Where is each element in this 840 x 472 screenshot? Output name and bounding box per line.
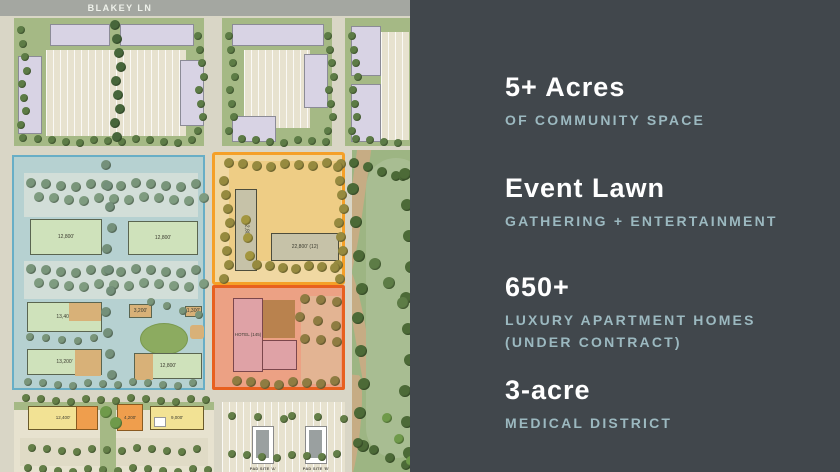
tree (159, 381, 167, 389)
tree (69, 382, 77, 390)
tree (194, 127, 202, 135)
tree (73, 448, 81, 456)
tree (18, 80, 26, 88)
tree (99, 380, 107, 388)
tree (294, 136, 302, 144)
tree (56, 267, 66, 277)
tree (195, 86, 203, 94)
tree (191, 179, 201, 189)
tree (326, 46, 334, 54)
tree (338, 246, 348, 256)
tree (327, 100, 335, 108)
tree (84, 379, 92, 387)
tree (58, 447, 66, 455)
block-northwest (14, 18, 204, 146)
tree (161, 267, 171, 277)
building: 3,200' (129, 304, 152, 318)
tree (79, 196, 89, 206)
tree (331, 321, 341, 331)
tree (337, 190, 347, 200)
tree (101, 307, 111, 317)
tree (339, 204, 349, 214)
tree (324, 127, 332, 135)
tree (24, 464, 32, 472)
tree (303, 452, 311, 460)
stat-value: 650+ (505, 274, 805, 301)
tree (353, 250, 365, 262)
building-label: 4,200' (118, 405, 142, 430)
tree (356, 283, 368, 295)
stat-label: OF COMMUNITY SPACE (505, 110, 705, 132)
tree (325, 86, 333, 94)
stat-community-space: 5+ Acres OF COMMUNITY SPACE (505, 74, 705, 132)
tree (200, 73, 208, 81)
tree (71, 182, 81, 192)
tree (116, 62, 126, 72)
tree (114, 467, 122, 472)
stat-apartment-homes: 650+ LUXURY APARTMENT HOMES (UNDER CONTR… (505, 274, 805, 353)
tree (179, 307, 187, 315)
tree (194, 32, 202, 40)
tree (352, 59, 360, 67)
building (304, 54, 328, 108)
tree (199, 279, 209, 289)
tree (86, 179, 96, 189)
tree (94, 279, 104, 289)
tree (355, 345, 367, 357)
tree (54, 467, 62, 472)
tree (348, 127, 356, 135)
tree (97, 396, 105, 404)
hotel-courtyard (263, 300, 295, 338)
tree (266, 138, 274, 146)
tree (335, 274, 345, 284)
stat-value: Event Lawn (505, 175, 778, 202)
tree (193, 445, 201, 453)
tree (67, 398, 75, 406)
tree (329, 113, 337, 121)
tree (62, 138, 70, 146)
tree (219, 176, 229, 186)
building-label: HOTEL (145) (234, 299, 262, 371)
tree (291, 264, 301, 274)
tree (288, 377, 298, 387)
tree (204, 466, 212, 472)
pad-site-label: PAD SITE 'B' (292, 466, 340, 471)
tree (350, 46, 358, 54)
tree (169, 195, 179, 205)
tree (302, 378, 312, 388)
tree (394, 139, 402, 147)
tree (56, 181, 66, 191)
tree (23, 67, 31, 75)
tree (260, 379, 270, 389)
retail-building: 4,200' (117, 404, 143, 431)
tree (294, 160, 304, 170)
tree (176, 268, 186, 278)
building: 12,800' (30, 219, 102, 255)
tree (174, 382, 182, 390)
tree (22, 394, 30, 402)
tree (353, 113, 361, 121)
tree (377, 167, 387, 177)
stat-value: 3-acre (505, 377, 672, 404)
tree (187, 395, 195, 403)
tree (225, 218, 235, 228)
tree (335, 176, 345, 186)
tree (222, 246, 232, 256)
event-lawn (140, 323, 188, 355)
tree (336, 232, 346, 242)
tree (184, 282, 194, 292)
tree (103, 328, 113, 338)
tree (227, 46, 235, 54)
tree (228, 100, 236, 108)
tree (103, 181, 113, 191)
tree (280, 139, 288, 147)
tree (54, 381, 62, 389)
retail-building-wing (76, 406, 98, 430)
tree (39, 465, 47, 472)
building: 22,800' (12) (271, 233, 339, 261)
tree (317, 262, 327, 272)
tree (90, 334, 98, 342)
tree (174, 468, 182, 472)
tree (161, 181, 171, 191)
tree (76, 139, 84, 147)
tree (79, 282, 89, 292)
tree (157, 397, 165, 405)
tree (354, 73, 362, 81)
tree (380, 138, 388, 146)
tree (198, 59, 206, 67)
tree (20, 94, 28, 102)
tree (127, 394, 135, 402)
tree (330, 73, 338, 81)
retail-building: 12,400' (28, 406, 98, 430)
tree (241, 215, 251, 225)
tree (22, 107, 30, 115)
building: 12,800' (128, 221, 198, 255)
parking-lot (381, 32, 409, 140)
tree (113, 90, 123, 100)
tree (107, 223, 117, 233)
tree (64, 281, 74, 291)
building-wing (75, 350, 101, 376)
tree (160, 138, 168, 146)
tree (82, 395, 90, 403)
tree (106, 286, 116, 296)
tree (58, 336, 66, 344)
tree (280, 159, 290, 169)
tree (104, 265, 114, 275)
tree (110, 118, 120, 128)
tree (99, 466, 107, 472)
tree (114, 48, 124, 58)
tree (17, 26, 25, 34)
building-detail (154, 417, 166, 427)
tree (88, 445, 96, 453)
tree (94, 193, 104, 203)
tree (324, 32, 332, 40)
stat-label: MEDICAL DISTRICT (505, 413, 672, 435)
tree (105, 202, 115, 212)
pad-site-label: PAD SITE 'A' (239, 466, 287, 471)
tree (266, 162, 276, 172)
tree (169, 281, 179, 291)
hotel-building: HOTEL (145) (233, 298, 263, 372)
building-label: 3,200' (130, 305, 151, 317)
slide: BLAKEY LN 12,800' (0, 0, 840, 472)
tree (280, 415, 288, 423)
stat-label: LUXURY APARTMENT HOMES (UNDER CONTRACT) (505, 310, 805, 353)
tree (220, 232, 230, 242)
building: 13,200' (27, 349, 102, 375)
building-wing (135, 354, 153, 380)
tree (19, 40, 27, 48)
stat-label: GATHERING + ENTERTAINMENT (505, 211, 778, 233)
tree (111, 76, 121, 86)
tree (348, 32, 356, 40)
tree (252, 161, 262, 171)
tree (230, 113, 238, 121)
tree (129, 464, 137, 472)
building-label: 12,800' (129, 222, 197, 254)
tree (112, 132, 122, 142)
tree (189, 379, 197, 387)
tree (90, 136, 98, 144)
tree (84, 465, 92, 472)
stat-value: 5+ Acres (505, 74, 705, 101)
tree (245, 251, 255, 261)
tree (172, 398, 180, 406)
tree (101, 160, 111, 170)
stat-event-lawn: Event Lawn GATHERING + ENTERTAINMENT (505, 175, 778, 233)
building: 12,800' (134, 353, 202, 379)
tree (304, 261, 314, 271)
street-label: BLAKEY LN (50, 3, 190, 13)
tree (104, 137, 112, 145)
tree (334, 218, 344, 228)
tree (231, 73, 239, 81)
stat-medical-district: 3-acre MEDICAL DISTRICT (505, 377, 672, 435)
tree (188, 136, 196, 144)
tree (107, 370, 117, 380)
tree (225, 32, 233, 40)
tree (332, 297, 342, 307)
site-plan-map: BLAKEY LN 12,800' (0, 0, 410, 472)
tree (178, 448, 186, 456)
block-north-center (222, 18, 332, 146)
retail-building: 9,000' (150, 406, 204, 430)
tree (112, 34, 122, 44)
building-label: 22,800' (12) (272, 234, 338, 260)
tree (74, 337, 82, 345)
tree (351, 100, 359, 108)
tree (340, 415, 348, 423)
tree (174, 139, 182, 147)
tree (385, 453, 395, 463)
tree (225, 127, 233, 135)
tree (229, 59, 237, 67)
tree (189, 465, 197, 472)
tree (52, 397, 60, 405)
tree (195, 311, 203, 319)
tree (159, 467, 167, 472)
tree (64, 195, 74, 205)
tree (115, 104, 125, 114)
tree (308, 137, 316, 145)
tree (352, 312, 364, 324)
tree (223, 204, 233, 214)
tree (278, 263, 288, 273)
tree (258, 453, 266, 461)
tree (176, 182, 186, 192)
tree (349, 86, 357, 94)
tree (184, 196, 194, 206)
tree (110, 20, 120, 30)
tree (105, 349, 115, 359)
building-wing (69, 303, 101, 321)
tree (226, 86, 234, 94)
tree (19, 134, 27, 142)
tree (191, 265, 201, 275)
tree (163, 447, 171, 455)
tree (288, 451, 296, 459)
tree (69, 468, 77, 472)
tree (243, 233, 253, 243)
tree (274, 380, 284, 390)
tree (197, 100, 205, 108)
tree (199, 193, 209, 203)
stats-panel: 5+ Acres OF COMMUNITY SPACE Event Lawn G… (410, 0, 840, 472)
tree (86, 265, 96, 275)
building (120, 24, 194, 46)
tree (199, 113, 207, 121)
building: 13,400' (27, 302, 102, 332)
tree (328, 59, 336, 67)
tree (71, 268, 81, 278)
building-label: 12,800' (31, 220, 101, 254)
tree (333, 162, 343, 172)
tree (144, 465, 152, 472)
tree (221, 190, 231, 200)
building (50, 24, 110, 46)
tree (219, 274, 229, 284)
tree (17, 121, 25, 129)
tree (273, 454, 281, 462)
plaza (190, 325, 204, 339)
tree (332, 337, 342, 347)
tree (102, 244, 112, 254)
tree (224, 260, 234, 270)
tree (196, 46, 204, 54)
tree (202, 396, 210, 404)
tree (103, 446, 111, 454)
building (232, 24, 324, 46)
tree (21, 53, 29, 61)
tree (397, 297, 409, 309)
